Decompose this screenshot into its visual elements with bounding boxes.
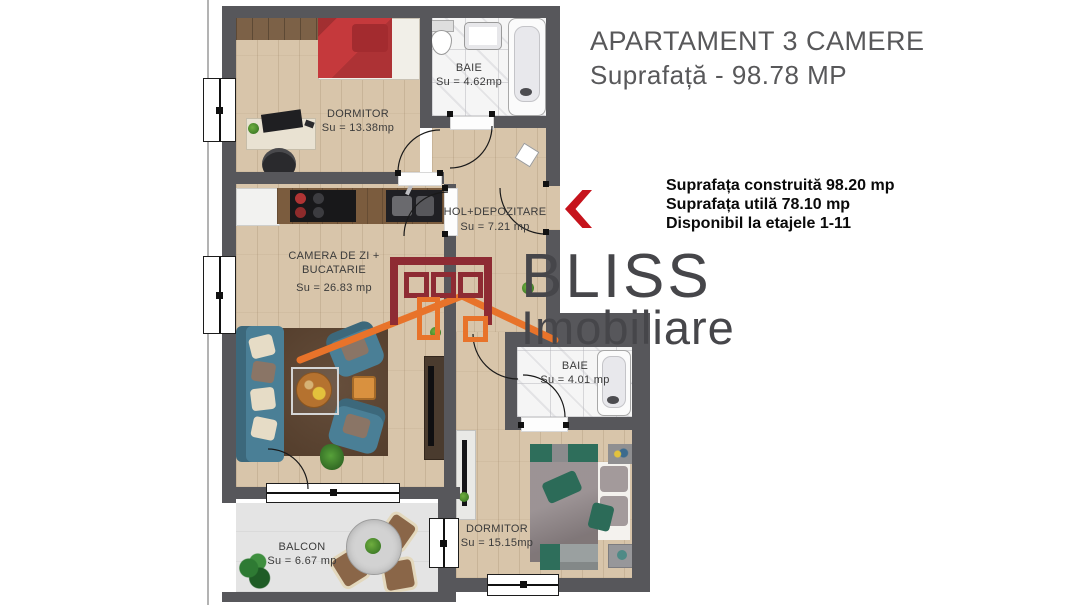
logo-building-window-2 — [431, 272, 456, 298]
logo-building-window-1 — [404, 272, 429, 298]
page-title: APARTAMENT 3 CAMERE — [590, 26, 925, 57]
label-dormitor2-area: Su = 15.15mp — [442, 537, 552, 550]
label-hol-area: Su = 7.21 mp — [435, 221, 555, 234]
label-baie2-area: Su = 4.01 mp — [525, 374, 625, 387]
apartment-details: Suprafața construită 98.20 mp Suprafața … — [666, 176, 895, 233]
logo-building-window-3 — [458, 272, 483, 298]
door-arc-baie1 — [450, 126, 492, 168]
door-arc-balcony — [268, 449, 308, 489]
label-balcon-name: BALCON — [252, 541, 352, 554]
label-living-line1: CAMERA DE ZI + — [274, 250, 394, 263]
detail-floors: Disponibil la etajele 1-11 — [666, 214, 895, 233]
door-arc-dormitor1 — [398, 130, 440, 172]
page-subtitle: Suprafață - 98.78 MP — [590, 60, 847, 91]
detail-usable-area: Suprafața utilă 78.10 mp — [666, 195, 895, 214]
watermark-brand2: Imobiliare — [521, 303, 735, 353]
label-living-line2: BUCATARIE — [274, 264, 394, 277]
label-balcon-area: Su = 6.67 mp — [252, 555, 352, 568]
floor-plan-page: BLISS Imobiliare DORMITOR Su = 13.38mp B… — [0, 0, 1086, 605]
logo-house-window — [463, 316, 488, 342]
label-baie2-name: BAIE — [525, 360, 625, 373]
label-living-area: Su = 26.83 mp — [274, 282, 394, 295]
logo-chimney — [417, 297, 440, 340]
label-baie1-name: BAIE — [428, 62, 510, 75]
label-hol-name: HOL+DEPOZITARE — [435, 206, 555, 219]
label-dormitor1-area: Su = 13.38mp — [298, 122, 418, 135]
label-dormitor1-name: DORMITOR — [298, 108, 418, 121]
watermark-brand: BLISS — [521, 246, 712, 308]
label-baie1-area: Su = 4.62mp — [428, 76, 510, 89]
label-dormitor2-name: DORMITOR — [442, 523, 552, 536]
detail-built-area: Suprafața construită 98.20 mp — [666, 176, 895, 195]
